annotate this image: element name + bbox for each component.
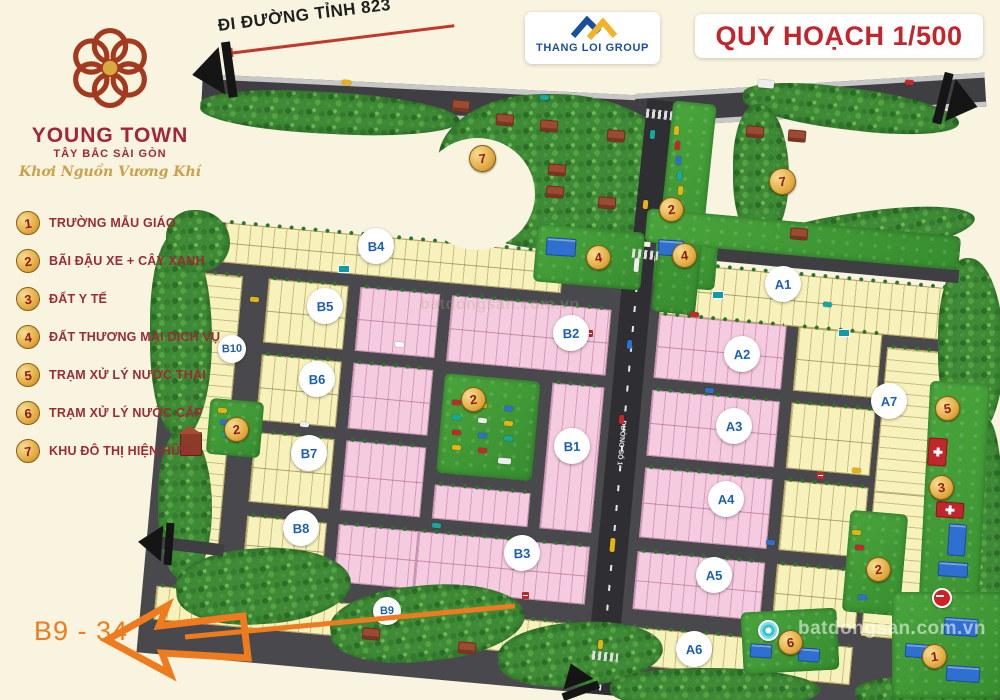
vehicle-icon [498,457,511,464]
pink-lots-3 [340,440,426,517]
block-a4-pink-lots [639,468,773,549]
vehicle-icon [852,530,861,536]
legend: 1TRƯỜNG MẪU GIÁO 2BÃI ĐẬU XE + CÂY XANH … [16,204,220,470]
vehicle-icon [677,171,683,180]
vehicle-icon [705,388,714,394]
legend-item-commercial: 4ĐẤT THƯƠNG MẠI DỊCH VỤ [16,318,220,356]
master-plan-map: ĐI ĐƯỜNG TỈNH 823 YOUNG TOWN TÂY BẮC SÀI… [0,0,1000,700]
vehicle-icon [676,156,682,165]
vehicle-icon [627,340,633,349]
water-tank-icon [758,620,779,641]
annotation-arrow-icon [95,592,535,687]
house-icon [452,99,471,113]
central-parking-green [436,373,541,481]
vehicle-icon [478,433,487,439]
vehicle-icon [619,415,625,424]
legend-item-watersupply: 6TRẠM XỬ LÝ NƯỚC CẤP [16,394,220,432]
house-icon [546,185,565,199]
vehicle-icon [540,95,549,101]
vehicle-icon [855,545,864,551]
public-building-icon [945,665,980,683]
medical-building-icon [935,501,964,519]
project-name: YOUNG TOWN [0,124,220,148]
street-sign-icon [712,291,724,299]
watermark: batdongsan.com.vn [798,618,986,640]
watermark: batdongsan.com.vn [420,296,580,314]
house-icon [607,129,626,143]
no-entry-icon [932,588,952,608]
vehicle-icon [452,400,461,406]
vehicle-icon [478,448,487,454]
vehicle-icon [504,436,513,442]
developer-name: THANG LOI GROUP [525,42,660,54]
developer-logo-icon [525,12,660,42]
vehicle-icon [852,468,861,474]
vehicle-icon [674,126,680,135]
vehicle-icon [858,595,867,601]
developer-logo-card: THANG LOI GROUP [525,12,660,64]
vehicle-icon [823,302,832,308]
block-a3-yellow-lots [786,403,876,476]
public-building-icon [938,561,969,578]
exit-arrow-west-icon [188,41,237,102]
vehicle-icon [250,297,259,303]
legend-item-wastewater: 5TRẠM XỬ LÝ NƯỚC THẢI [16,356,220,394]
vehicle-icon [342,80,351,86]
young-town-logo-icon [58,16,162,120]
vehicle-icon [504,421,513,427]
vehicle-icon [650,130,656,139]
vehicle-icon [478,418,487,424]
vehicle-icon [432,523,441,529]
vehicle-icon [504,406,513,412]
exit-arrow-southwest-icon [137,521,175,565]
pink-lots-5 [432,485,531,528]
plan-title-card: QUY HOẠCH 1/500 [695,14,983,58]
street-sign-icon [338,265,350,273]
legend-item-kindergarten: 1TRƯỜNG MẪU GIÁO [16,204,220,242]
project-subtitle: TÂY BẮC SÀI GÒN [0,148,220,160]
vehicle-icon [905,80,914,86]
plan-title: QUY HOẠCH 1/500 [695,14,983,58]
vehicle-icon [452,415,461,421]
public-building-icon [750,643,773,659]
vehicle-icon [690,312,699,318]
block-a2-yellow-lots [793,327,882,398]
vehicle-icon [758,79,775,88]
stop-sign-icon [817,472,824,479]
house-icon [540,119,559,133]
pink-lots-2 [348,363,434,436]
legend-item-existing-urban: 7KHU ĐÔ THỊ HIỆN HỮU [16,432,220,470]
legend-item-medical: 3ĐẤT Y TẾ [16,280,220,318]
block-a3-pink-lots [646,390,779,467]
house-icon [746,125,765,139]
vehicle-icon [598,640,604,649]
vehicle-icon [452,445,461,451]
legend-item-parking-green: 2BÃI ĐẬU XE + CÂY XANH [16,242,220,280]
vehicle-icon [643,200,649,209]
house-icon [598,196,617,210]
vehicle-icon [300,422,309,428]
public-building-icon [798,647,821,663]
project-slogan: Khơi Nguồn Vương Khí [0,164,220,180]
public-building-icon [545,237,576,257]
medical-building-icon [927,437,948,466]
vehicle-icon [452,430,461,436]
house-icon [496,113,515,127]
block-a2-pink-lots [653,314,786,389]
vehicle-icon [395,342,404,348]
vehicle-icon [678,186,684,195]
public-building-icon [947,523,967,556]
house-icon [788,129,807,143]
street-sign-icon [838,329,850,337]
vehicle-icon [766,540,775,546]
house-icon [548,163,567,177]
vehicle-icon [675,141,681,150]
house-icon [790,227,809,241]
highway-label: ĐI ĐƯỜNG TỈNH 823 [217,0,392,36]
